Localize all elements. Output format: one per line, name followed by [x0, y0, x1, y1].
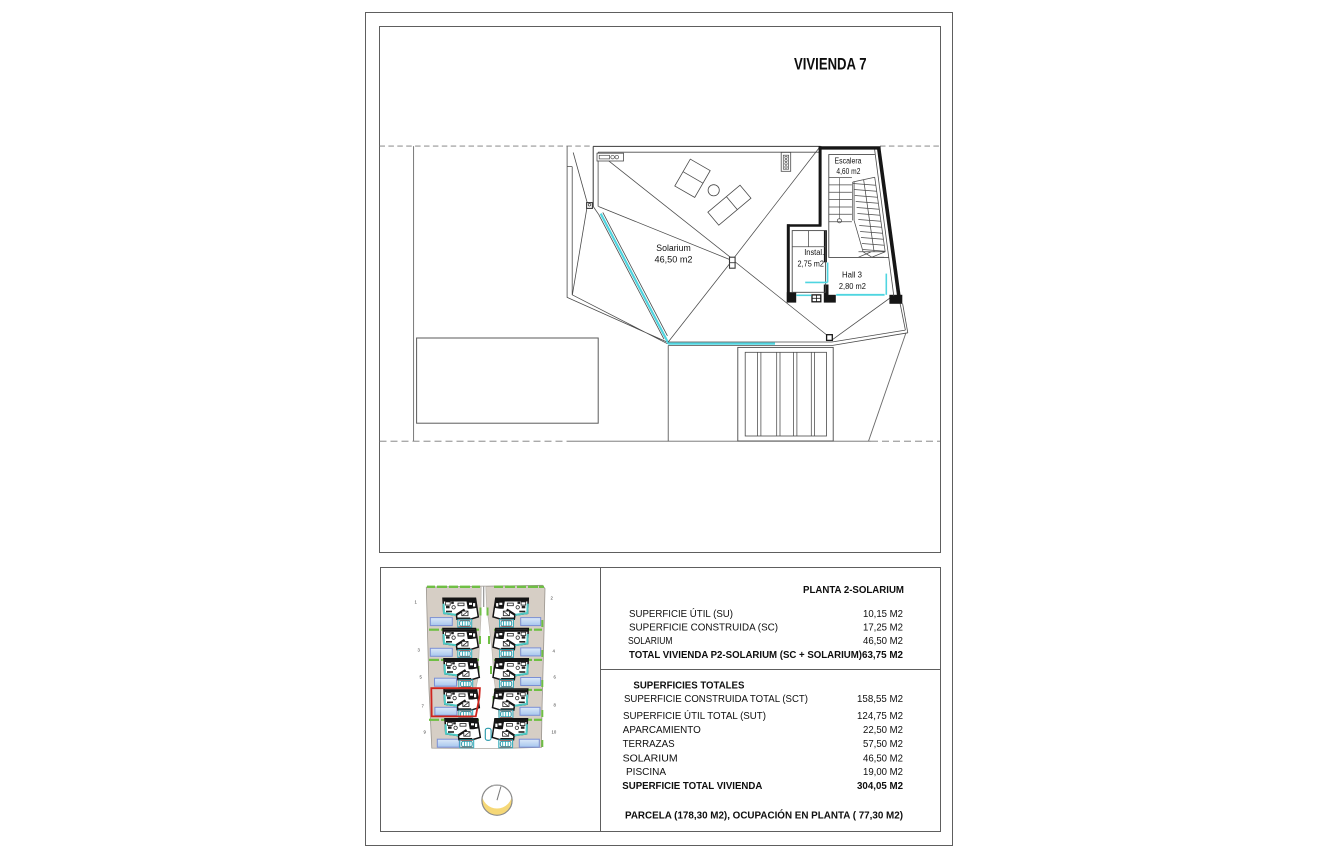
svg-text:PARCELA (178,30 M2), OCUPACIÓ: PARCELA (178,30 M2), OCUPACIÓN EN PLANTA… [625, 809, 903, 822]
svg-text:APARCAMIENTO: APARCAMIENTO [623, 725, 701, 736]
svg-text:VIVIENDA 7: VIVIENDA 7 [794, 55, 867, 74]
svg-text:158,55 M2: 158,55 M2 [857, 694, 903, 705]
svg-text:46,50 m2: 46,50 m2 [655, 254, 693, 265]
svg-text:Hall 3: Hall 3 [842, 269, 862, 279]
svg-text:10,15 M2: 10,15 M2 [863, 609, 903, 620]
svg-text:10: 10 [552, 730, 557, 735]
svg-text:4,60 m2: 4,60 m2 [836, 166, 860, 176]
svg-text:124,75 M2: 124,75 M2 [857, 711, 903, 722]
svg-text:SUPERFICIE TOTAL VIVIENDA: SUPERFICIE TOTAL VIVIENDA [622, 781, 762, 792]
svg-text:2,75 m2: 2,75 m2 [798, 259, 825, 269]
svg-text:PISCINA: PISCINA [626, 767, 666, 778]
svg-text:46,50 M2: 46,50 M2 [863, 753, 903, 764]
svg-text:SOLARIUM: SOLARIUM [628, 636, 673, 647]
svg-text:PLANTA 2-SOLARIUM: PLANTA 2-SOLARIUM [803, 585, 904, 596]
svg-text:SUPERFICIE CONSTRUIDA (SC): SUPERFICIE CONSTRUIDA (SC) [629, 623, 778, 634]
svg-text:304,05 M2: 304,05 M2 [857, 781, 903, 792]
svg-text:22,50 M2: 22,50 M2 [863, 725, 903, 736]
svg-text:SUPERFICIE ÚTIL TOTAL (SUT): SUPERFICIE ÚTIL TOTAL (SUT) [623, 709, 766, 722]
svg-text:SUPERFICIE ÚTIL (SU): SUPERFICIE ÚTIL (SU) [629, 607, 733, 620]
svg-text:Solarium: Solarium [656, 243, 691, 254]
svg-text:19,00 M2: 19,00 M2 [863, 767, 903, 778]
svg-text:2,80 m2: 2,80 m2 [839, 281, 866, 291]
svg-text:TERRAZAS: TERRAZAS [623, 739, 675, 750]
svg-text:SUPERFICIES TOTALES: SUPERFICIES TOTALES [633, 680, 744, 691]
svg-text:Instal.: Instal. [804, 247, 824, 257]
svg-text:17,25 M2: 17,25 M2 [863, 623, 903, 634]
svg-text:46,50 M2: 46,50 M2 [863, 636, 903, 647]
svg-text:SUPERFICIE CONSTRUIDA TOTAL (S: SUPERFICIE CONSTRUIDA TOTAL (SCT) [624, 694, 808, 705]
svg-text:SOLARIUM: SOLARIUM [623, 753, 678, 764]
svg-text:Escalera: Escalera [835, 156, 862, 166]
svg-text:57,50 M2: 57,50 M2 [863, 739, 903, 750]
svg-text:TOTAL VIVIENDA P2-SOLARIUM (SC: TOTAL VIVIENDA P2-SOLARIUM (SC + SOLARIU… [629, 650, 862, 661]
svg-text:63,75 M2: 63,75 M2 [862, 650, 903, 661]
